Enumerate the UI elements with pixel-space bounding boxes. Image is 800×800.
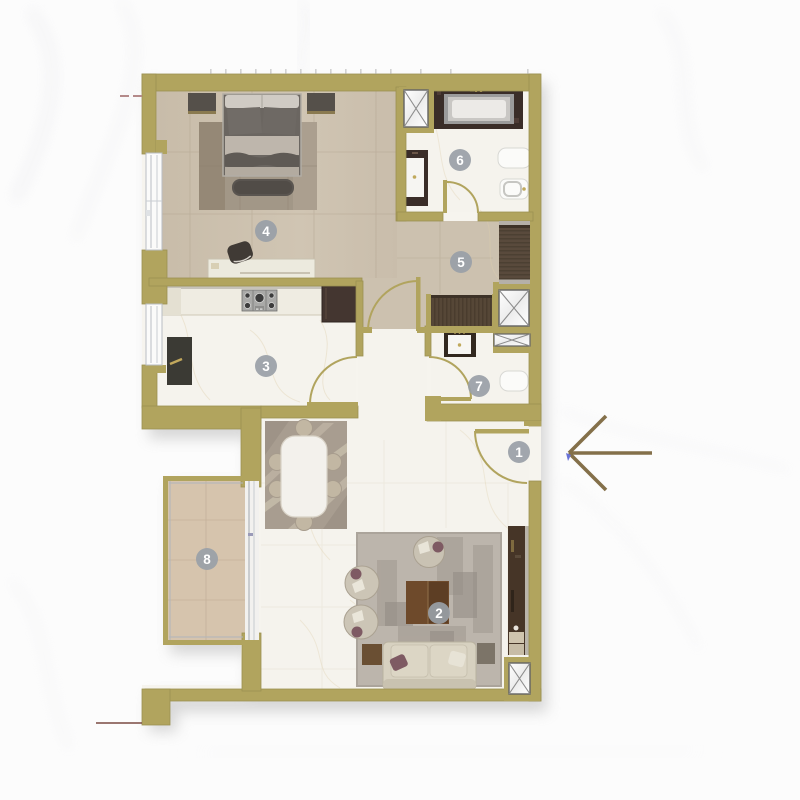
svg-text:6: 6 [456, 153, 464, 168]
svg-text:1: 1 [515, 445, 523, 460]
svg-text:2: 2 [435, 606, 443, 621]
svg-text:4: 4 [262, 224, 270, 239]
svg-text:8: 8 [203, 552, 211, 567]
svg-text:3: 3 [262, 359, 270, 374]
svg-text:5: 5 [457, 255, 465, 270]
svg-text:7: 7 [475, 379, 483, 394]
